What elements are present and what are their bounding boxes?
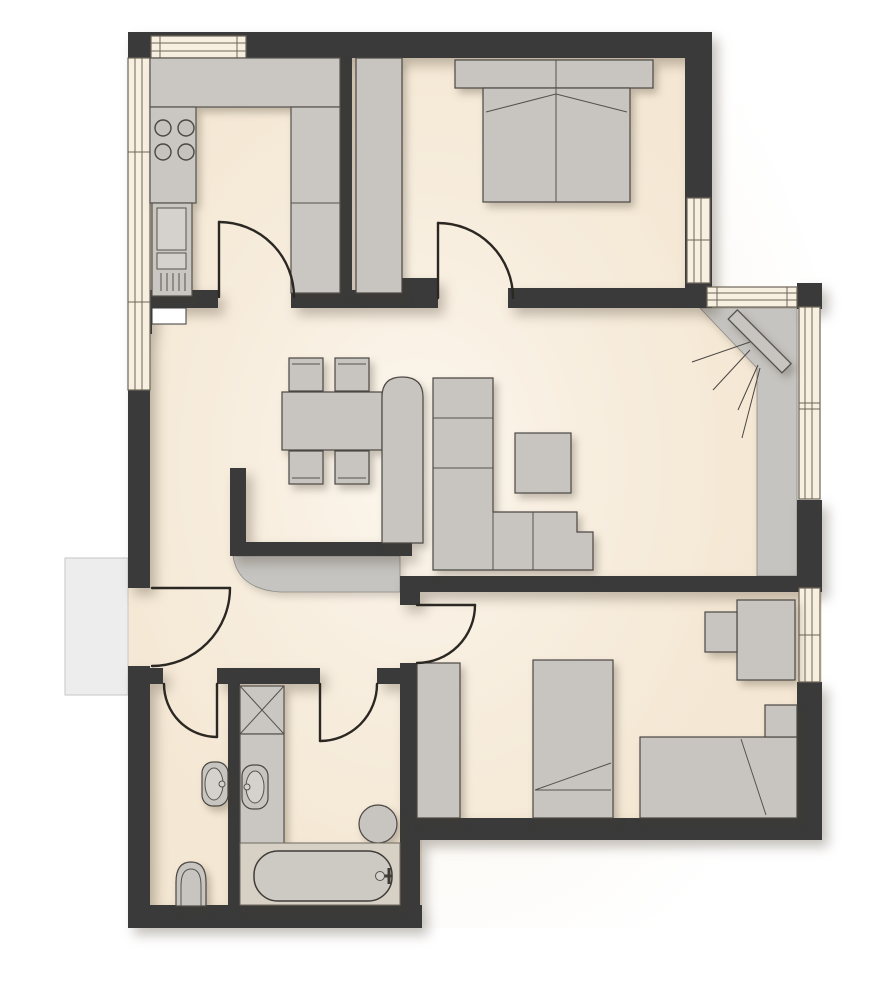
desk-chair (705, 612, 737, 652)
wall-left-lower (128, 666, 150, 928)
bed-double-headboard (455, 60, 653, 88)
wall-mid-c (508, 288, 712, 308)
layer-landing (65, 558, 128, 695)
window-living-top (707, 287, 797, 307)
bed-single-horizontal-pillow (765, 705, 797, 737)
kitchen-counter-right (291, 107, 340, 293)
wall-right-mid (797, 500, 822, 592)
floor-plan (0, 0, 889, 1000)
dining-chair-3 (289, 451, 323, 484)
stove-burner-4 (178, 144, 194, 160)
wall-bath-bottom (128, 905, 422, 928)
highboard (382, 377, 423, 543)
entrance-landing (65, 558, 128, 695)
stove-burner-1 (155, 120, 171, 136)
dining-chair-2 (335, 358, 369, 391)
wall-bathtop-3 (377, 668, 400, 684)
curved-wall (233, 556, 400, 592)
appliance-door (157, 208, 186, 250)
wc-sink-tap (219, 781, 225, 787)
bath-sink-tap (244, 784, 250, 790)
wall-niche (152, 308, 186, 324)
floor-plan-page (0, 0, 889, 1000)
alcove-wardrobe (356, 58, 402, 293)
dining-chair-4 (335, 451, 369, 484)
window-kitchen-top (151, 36, 246, 58)
washing-machine (359, 805, 397, 843)
faucet-head (376, 872, 385, 881)
wall-kitchen-alcove (340, 32, 352, 308)
dining-table (282, 392, 382, 450)
stove-burner-2 (178, 120, 194, 136)
bed-single-horizontal (640, 737, 797, 818)
wall-bathtop-1 (128, 668, 163, 684)
wall-right-lower (797, 682, 822, 818)
bed-single-vertical (533, 660, 613, 818)
bedroom2-wardrobe (417, 663, 460, 818)
wall-right-top-corner (797, 283, 822, 309)
wall-wc-bath (228, 684, 240, 905)
kitchen-counter-top (150, 58, 340, 107)
wall-living-bottom (400, 576, 822, 592)
window-kitchen-left (128, 58, 150, 390)
wall-bedroom2-bottom (400, 818, 822, 840)
bathtub (254, 851, 392, 901)
stove-burner-3 (155, 144, 171, 160)
appliance-drawer (157, 253, 186, 269)
desk (737, 600, 795, 680)
dining-chair-1 (289, 358, 323, 391)
wall-l-horizontal (230, 542, 412, 556)
side-table (515, 433, 571, 493)
wall-bathtop-2 (217, 668, 320, 684)
